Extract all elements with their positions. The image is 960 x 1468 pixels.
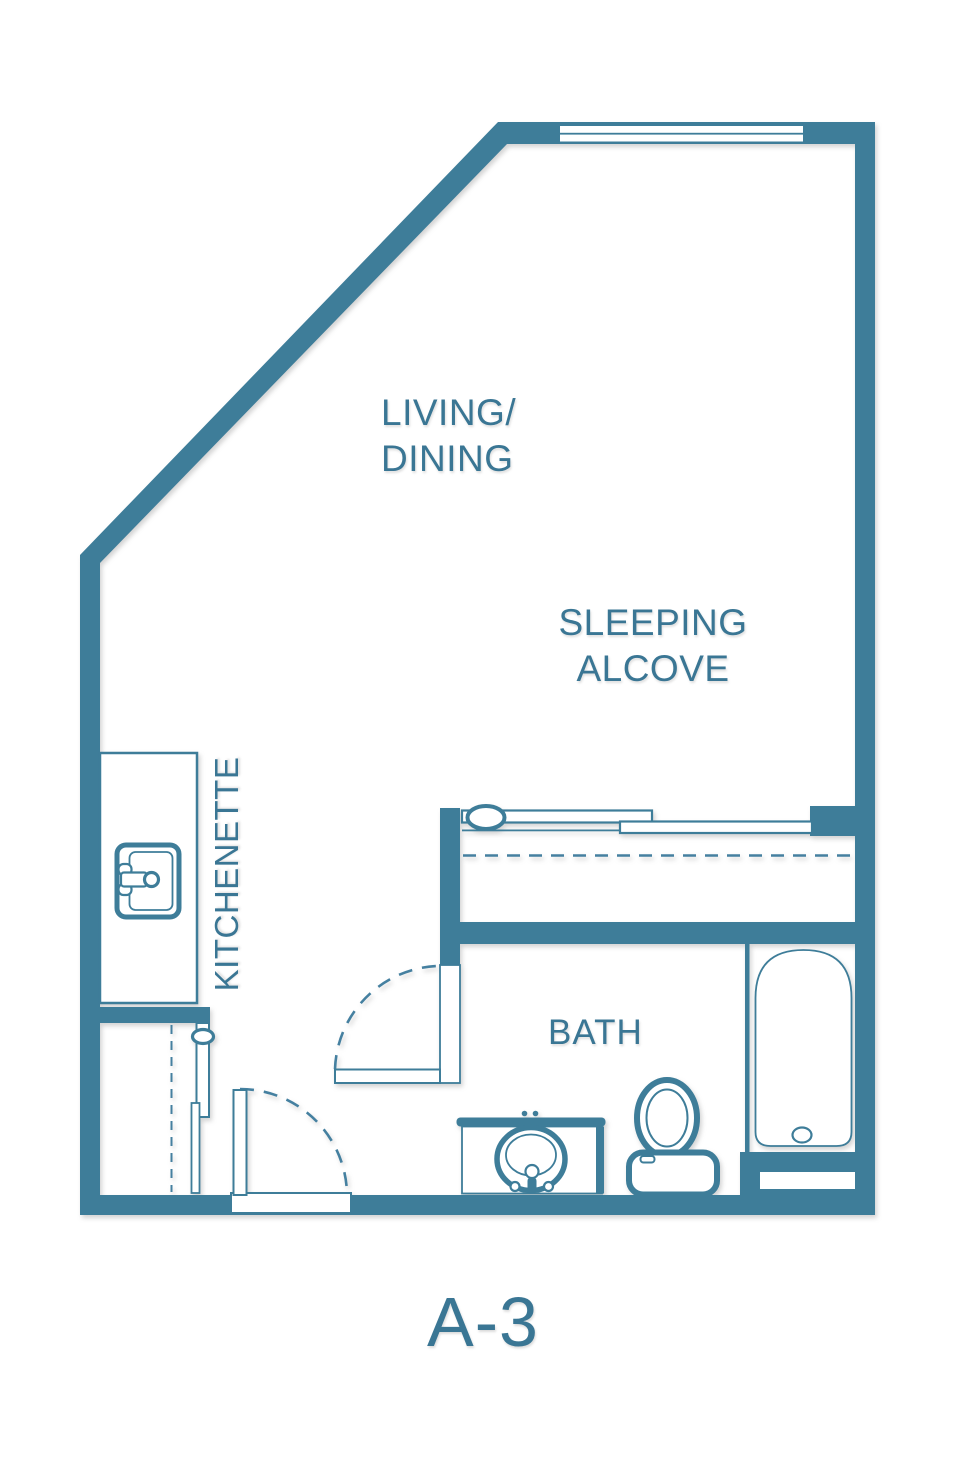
closet-sliding-door-panel-2	[192, 1103, 200, 1193]
alcove-wardrobe	[462, 806, 852, 856]
kitchen-south-wall	[80, 1007, 210, 1023]
entry-door	[234, 1089, 348, 1195]
closet-east-stub-wall	[810, 806, 855, 836]
bathtub-icon	[756, 950, 852, 1146]
bath-door-swing-arc-icon	[335, 966, 437, 1069]
bath-door-leaf	[335, 1070, 440, 1084]
kitchen-sink-icon	[117, 845, 179, 917]
floor-plan-drawing	[0, 0, 960, 1468]
room-label-living-dining: LIVING/ DINING	[381, 390, 516, 482]
entry-door-leaf	[234, 1090, 247, 1195]
entry-doorway-opening	[231, 1193, 351, 1213]
bath-north-wall	[440, 922, 855, 944]
floor-plan: LIVING/ DINING SLEEPING ALCOVE KITCHENET…	[0, 0, 960, 1468]
window-icon	[560, 126, 803, 142]
plan-name-label: A-3	[333, 1282, 633, 1362]
tub-partition-wall	[745, 943, 750, 1152]
room-label-sleeping-alcove: SLEEPING ALCOVE	[530, 600, 776, 692]
wardrobe-sliding-door-panel-2	[620, 822, 812, 834]
toilet-icon	[629, 1080, 717, 1195]
room-label-bath: BATH	[548, 1010, 643, 1056]
wardrobe-door-handle-icon	[468, 806, 505, 829]
bath-doorway-opening	[440, 965, 460, 1083]
kitchenette-fixtures	[100, 753, 197, 1003]
entry-door-swing-arc-icon	[240, 1089, 347, 1194]
bath-door	[335, 966, 440, 1083]
tub-drain-icon	[793, 1128, 812, 1143]
vanity-sink-icon	[457, 1111, 606, 1194]
closet-door-handle-icon	[193, 1030, 214, 1044]
room-label-kitchenette: KITCHENETTE	[204, 757, 250, 992]
lower-left-closet	[172, 1023, 214, 1193]
under-tub-niche	[760, 1172, 855, 1189]
